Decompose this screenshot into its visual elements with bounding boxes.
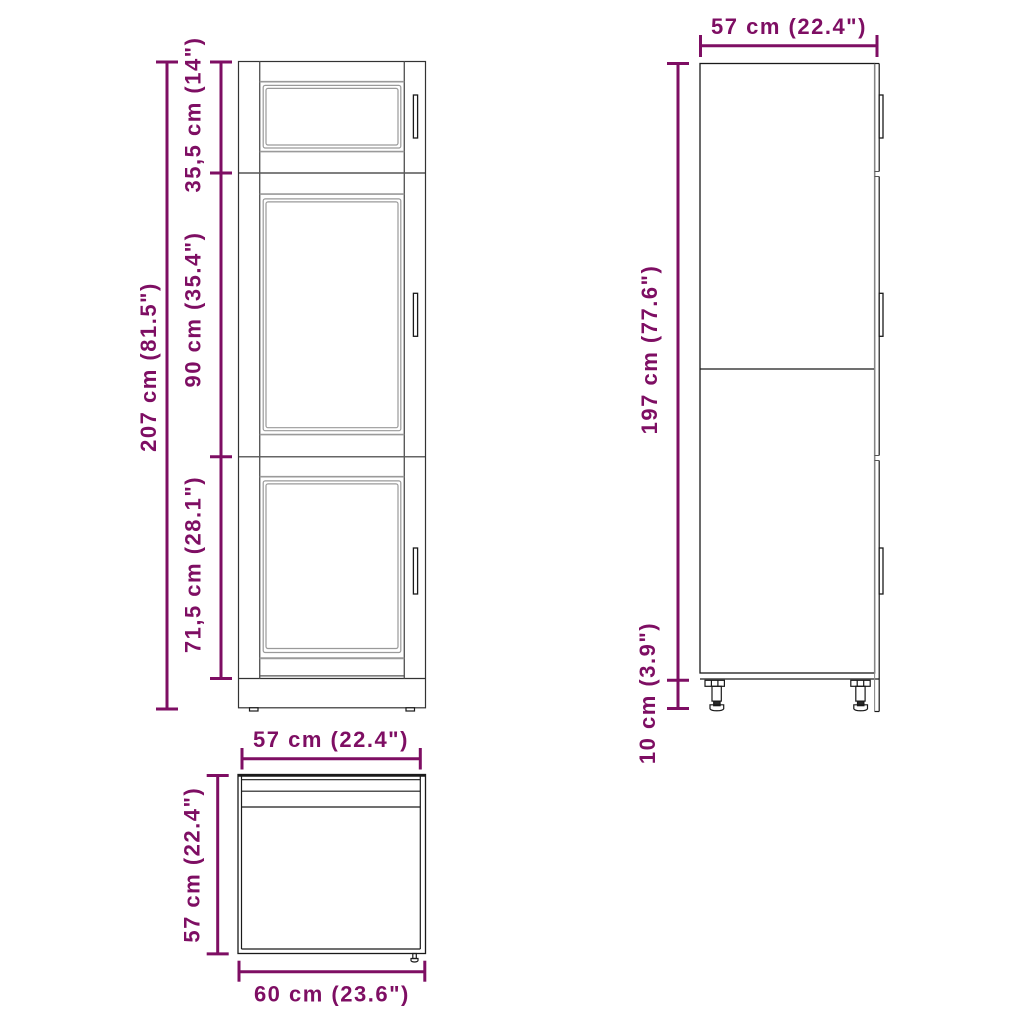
svg-text:60 cm (23.6"): 60 cm (23.6"): [254, 982, 410, 1007]
svg-text:57 cm (22.4"): 57 cm (22.4"): [253, 727, 409, 752]
svg-text:71,5 cm (28.1"): 71,5 cm (28.1"): [181, 476, 206, 653]
svg-text:57 cm (22.4"): 57 cm (22.4"): [180, 787, 205, 943]
svg-text:10 cm (3.9"): 10 cm (3.9"): [635, 622, 660, 764]
svg-text:207 cm (81.5"): 207 cm (81.5"): [136, 282, 161, 452]
svg-text:35,5 cm (14"): 35,5 cm (14"): [181, 37, 206, 193]
svg-text:197 cm (77.6"): 197 cm (77.6"): [637, 265, 662, 435]
svg-text:57 cm (22.4"): 57 cm (22.4"): [711, 14, 867, 39]
svg-text:90 cm (35.4"): 90 cm (35.4"): [181, 232, 206, 388]
